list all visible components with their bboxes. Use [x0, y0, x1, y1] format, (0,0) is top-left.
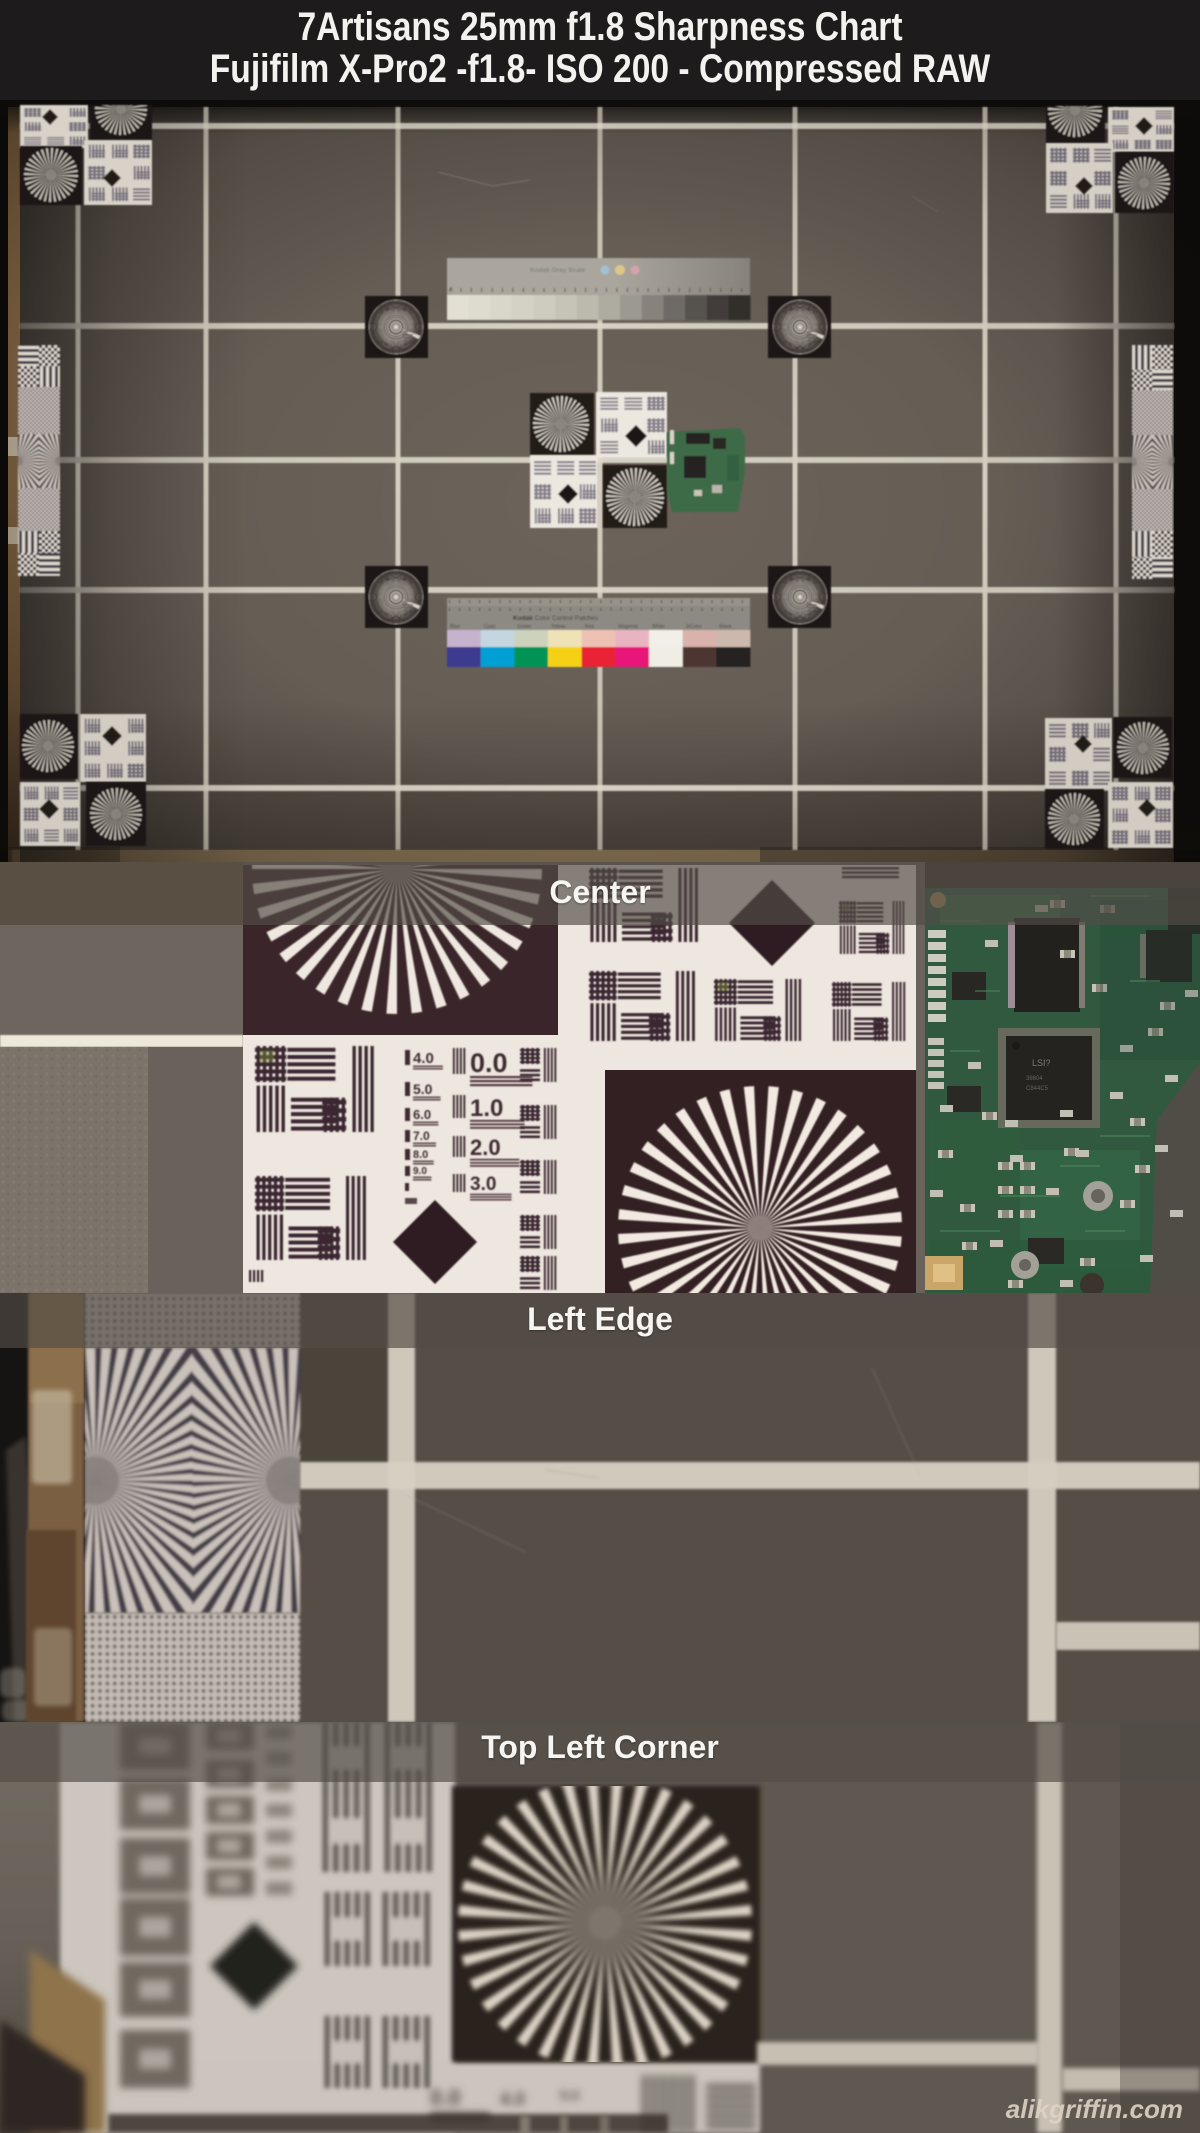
svg-text:A: A: [449, 287, 453, 293]
svg-text:6.0: 6.0: [413, 1107, 431, 1122]
svg-text:7.0: 7.0: [413, 1129, 430, 1143]
svg-text:Red: Red: [585, 624, 594, 630]
svg-text:5.0: 5.0: [560, 2087, 580, 2103]
svg-text:Magenta: Magenta: [618, 624, 638, 630]
svg-text:Kodak Color Control Patches: Kodak Color Control Patches: [513, 615, 599, 622]
svg-text:Yellow: Yellow: [551, 624, 566, 630]
svg-text:5.0: 5.0: [413, 1081, 433, 1097]
svg-text:4.0: 4.0: [500, 2089, 525, 2109]
svg-text:9.0: 9.0: [413, 1166, 427, 1177]
svg-text:Kodak Gray Scale: Kodak Gray Scale: [530, 267, 586, 274]
svg-text:2.0: 2.0: [470, 1135, 501, 1160]
svg-text:Black: Black: [719, 624, 732, 630]
svg-text:White: White: [652, 624, 665, 630]
svg-text:0.0: 0.0: [430, 2085, 461, 2110]
svg-text:Cyan: Cyan: [484, 624, 496, 630]
svg-text:8.0: 8.0: [413, 1149, 428, 1161]
svg-text:3/Color: 3/Color: [686, 624, 702, 630]
svg-text:Blue: Blue: [450, 624, 460, 630]
svg-text:4.0: 4.0: [413, 1050, 434, 1067]
svg-text:Green: Green: [517, 624, 531, 630]
svg-text:1.0: 1.0: [470, 1095, 503, 1122]
svg-text:0.0: 0.0: [470, 1048, 508, 1078]
svg-text:3.0: 3.0: [470, 1174, 496, 1195]
